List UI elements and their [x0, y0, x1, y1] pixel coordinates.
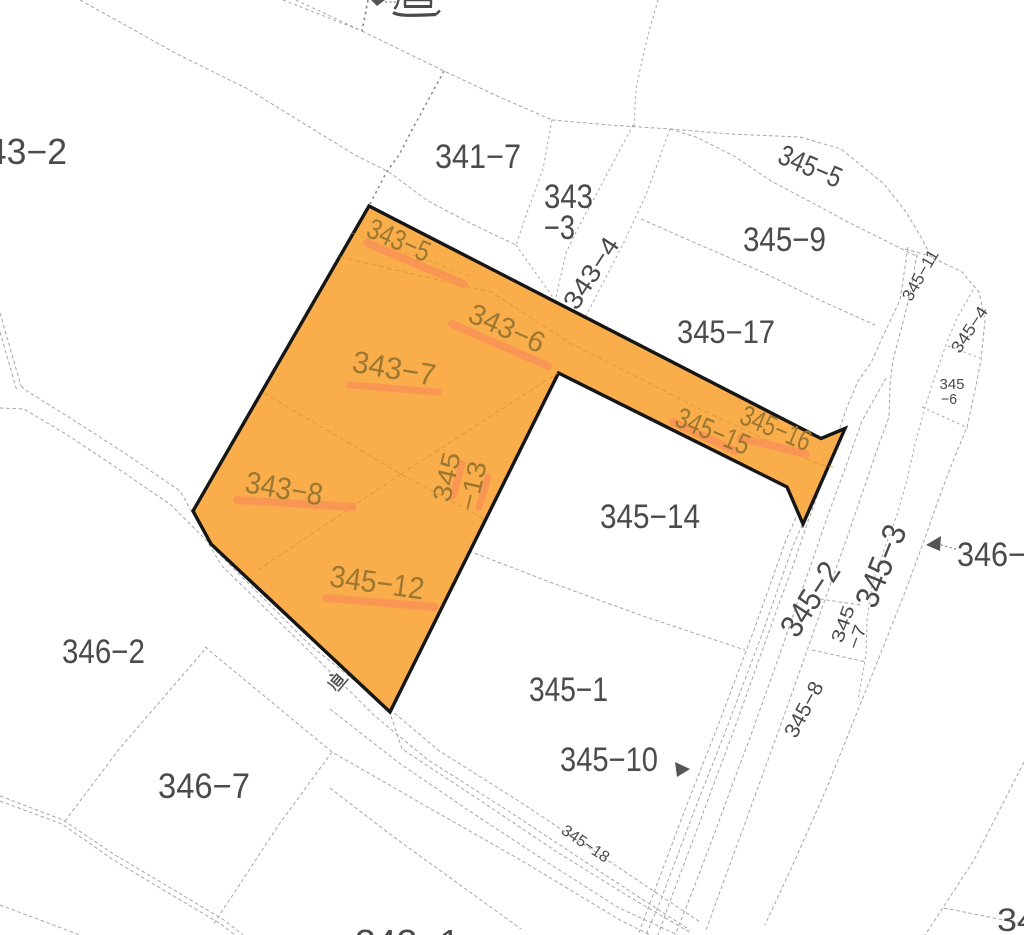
svg-text:345−10: 345−10	[560, 741, 658, 779]
svg-text:343−1: 343−1	[355, 922, 460, 935]
svg-text:346: 346	[997, 902, 1024, 935]
svg-text:346−7: 346−7	[158, 767, 250, 806]
svg-text:345−17: 345−17	[677, 314, 775, 350]
svg-text:345−1: 345−1	[529, 671, 608, 709]
svg-text:346−2: 346−2	[62, 633, 145, 671]
svg-text:346−1: 346−1	[957, 536, 1024, 574]
svg-text:−6: −6	[941, 391, 957, 408]
svg-text:345−9: 345−9	[743, 221, 826, 259]
svg-text:343−2: 343−2	[0, 131, 67, 172]
svg-text:341−7: 341−7	[435, 138, 521, 176]
svg-text:−3: −3	[544, 209, 575, 247]
svg-text:345−14: 345−14	[600, 498, 700, 536]
